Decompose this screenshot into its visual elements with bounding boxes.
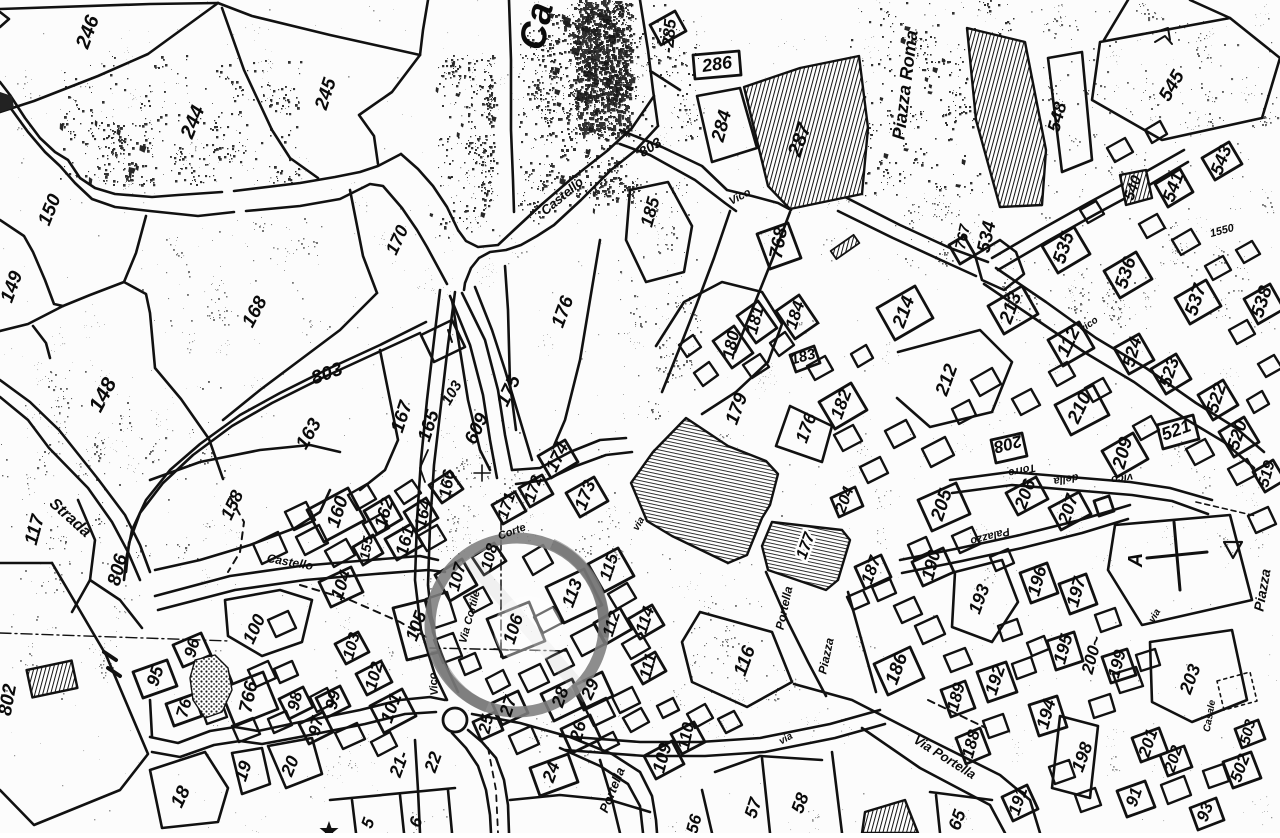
svg-text:-285: -285 [658, 18, 680, 54]
svg-text:Vico: Vico [427, 672, 441, 696]
svg-text:A: A [1125, 553, 1147, 568]
